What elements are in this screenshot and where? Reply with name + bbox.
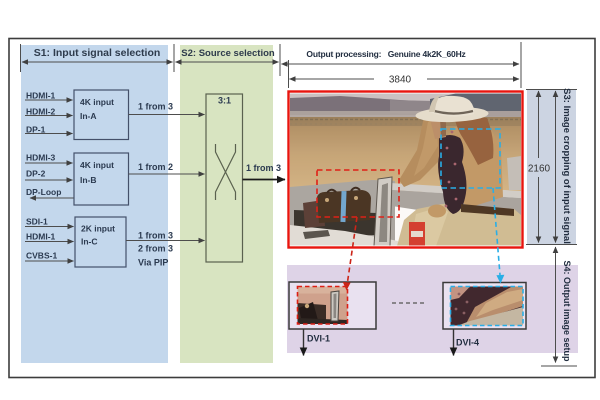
svg-text:DVI-4: DVI-4 <box>456 338 479 348</box>
svg-text:Output processing: Genuine 4: Output processing: Genuine 4k2K_60Hz <box>306 49 465 59</box>
svg-text:1 from 2: 1 from 2 <box>138 162 173 172</box>
svg-text:DP-Loop: DP-Loop <box>26 187 61 197</box>
svg-text:S3: Image cropping of input si: S3: Image cropping of input signal <box>561 88 572 244</box>
svg-text:HDMI-1: HDMI-1 <box>26 91 56 101</box>
svg-text:In-C: In-C <box>81 237 98 247</box>
svg-text:In-A: In-A <box>80 111 97 121</box>
svg-text:In-B: In-B <box>80 175 97 185</box>
svg-text:4K input: 4K input <box>80 97 114 107</box>
svg-text:2K input: 2K input <box>81 224 115 234</box>
svg-text:HDMI-3: HDMI-3 <box>26 153 56 163</box>
svg-text:SDI-1: SDI-1 <box>26 217 48 227</box>
svg-text:3840: 3840 <box>389 75 412 86</box>
svg-text:DP-2: DP-2 <box>26 169 46 179</box>
svg-text:S1: Input signal selection: S1: Input signal selection <box>34 47 161 59</box>
svg-text:4K input: 4K input <box>80 160 114 170</box>
svg-text:1 from 3: 1 from 3 <box>246 163 281 173</box>
svg-text:2 from 3: 2 from 3 <box>138 244 173 254</box>
svg-text:CVBS-1: CVBS-1 <box>26 251 57 261</box>
svg-text:HDMI-1: HDMI-1 <box>26 232 56 242</box>
svg-text:S4: Output image setup: S4: Output image setup <box>562 260 572 362</box>
svg-text:1 from 3: 1 from 3 <box>138 102 173 112</box>
svg-text:Via PIP: Via PIP <box>138 258 168 268</box>
svg-text:S2: Source selection: S2: Source selection <box>181 48 275 59</box>
svg-text:2160: 2160 <box>528 164 551 175</box>
svg-text:3:1: 3:1 <box>218 96 231 106</box>
svg-text:1 from 3: 1 from 3 <box>138 231 173 241</box>
svg-text:DVI-1: DVI-1 <box>307 334 330 344</box>
